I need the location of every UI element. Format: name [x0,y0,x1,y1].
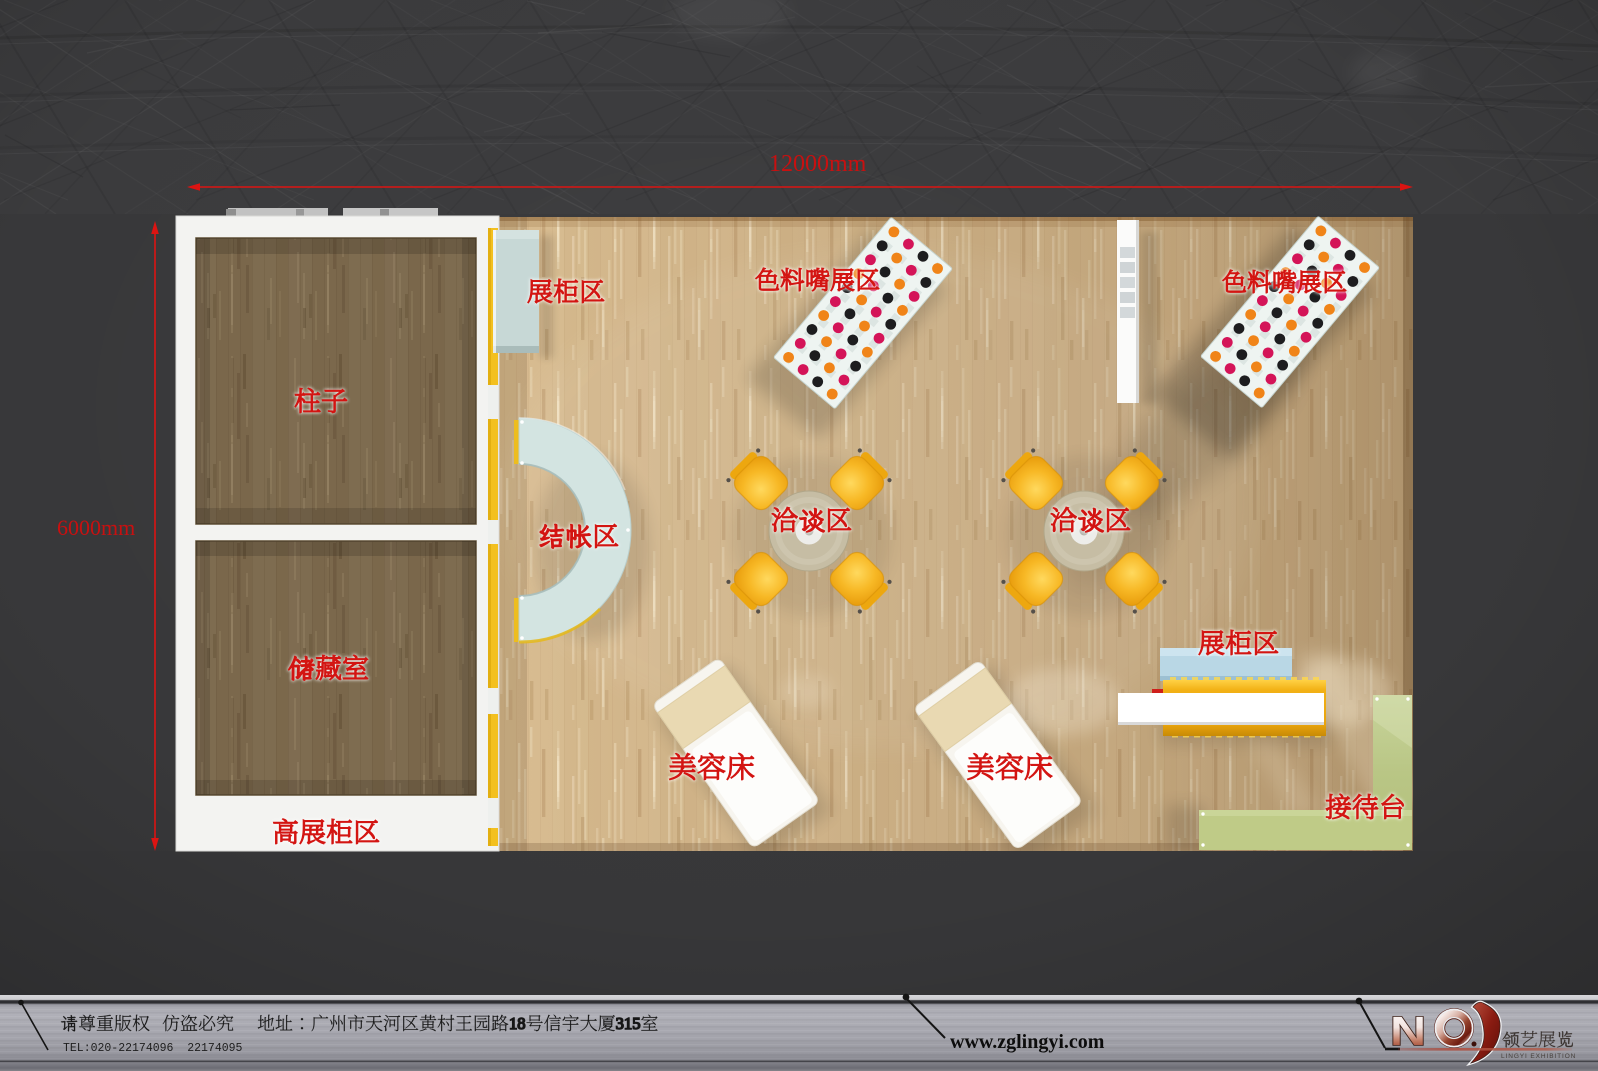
svg-text:12000mm: 12000mm [769,151,867,177]
svg-text:315: 315 [616,1014,641,1033]
svg-text:LINGYI EXHIBITION: LINGYI EXHIBITION [1501,1053,1576,1060]
svg-text:18: 18 [509,1014,526,1033]
svg-text:www.zglingyi.com: www.zglingyi.com [950,1031,1105,1053]
svg-text:TEL:020-22174096 22174095: TEL:020-22174096 22174095 [63,1042,243,1055]
svg-text:N: N [1390,1008,1426,1054]
svg-text:6000mm: 6000mm [57,515,135,540]
